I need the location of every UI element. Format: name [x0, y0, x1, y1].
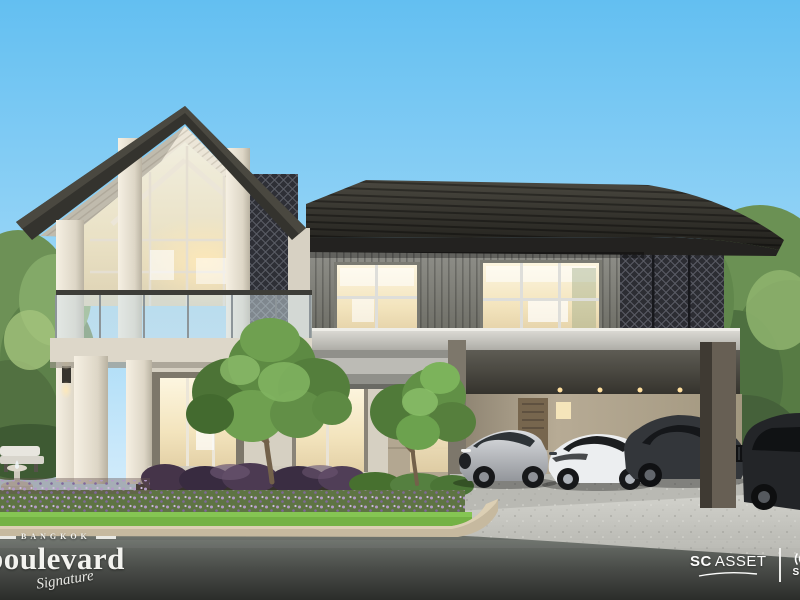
house-render-scene — [0, 0, 800, 600]
purple-hedge — [141, 463, 366, 494]
logo-bar-left — [0, 536, 16, 539]
project-logo: BANGKOK boulevard Signature — [0, 533, 136, 585]
logo-bar-right — [96, 536, 116, 539]
carport-parapet — [312, 328, 740, 350]
porch-column-right — [126, 360, 152, 484]
sc-asset-prefix: SC — [690, 553, 712, 570]
sc-asset-wordmark: SCASSET — [690, 553, 767, 570]
upper-window-left — [334, 262, 420, 338]
upper-window-right — [480, 260, 602, 338]
porch-column-left — [74, 356, 108, 484]
sc-asset-swoosh — [697, 570, 759, 578]
sc-asset-suffix: ASSET — [715, 553, 767, 570]
sc-asset-logo: SCASSET — [690, 553, 767, 578]
partner-logo-text: SCAS — [793, 567, 800, 578]
project-logo-city-row: BANGKOK — [0, 533, 136, 541]
project-logo-city: BANGKOK — [21, 533, 91, 541]
carport-right-column — [700, 342, 736, 508]
broadcast-icon — [793, 552, 800, 566]
carport-lit-window — [556, 402, 571, 419]
carport-soffit — [458, 350, 740, 394]
developer-logos: SCASSET SCAS — [690, 548, 800, 582]
marketing-render: BANGKOK boulevard Signature SCASSET SCAS — [0, 0, 800, 600]
right-wing — [300, 180, 784, 342]
logo-divider — [779, 548, 781, 582]
partner-logo: SCAS — [793, 552, 800, 578]
